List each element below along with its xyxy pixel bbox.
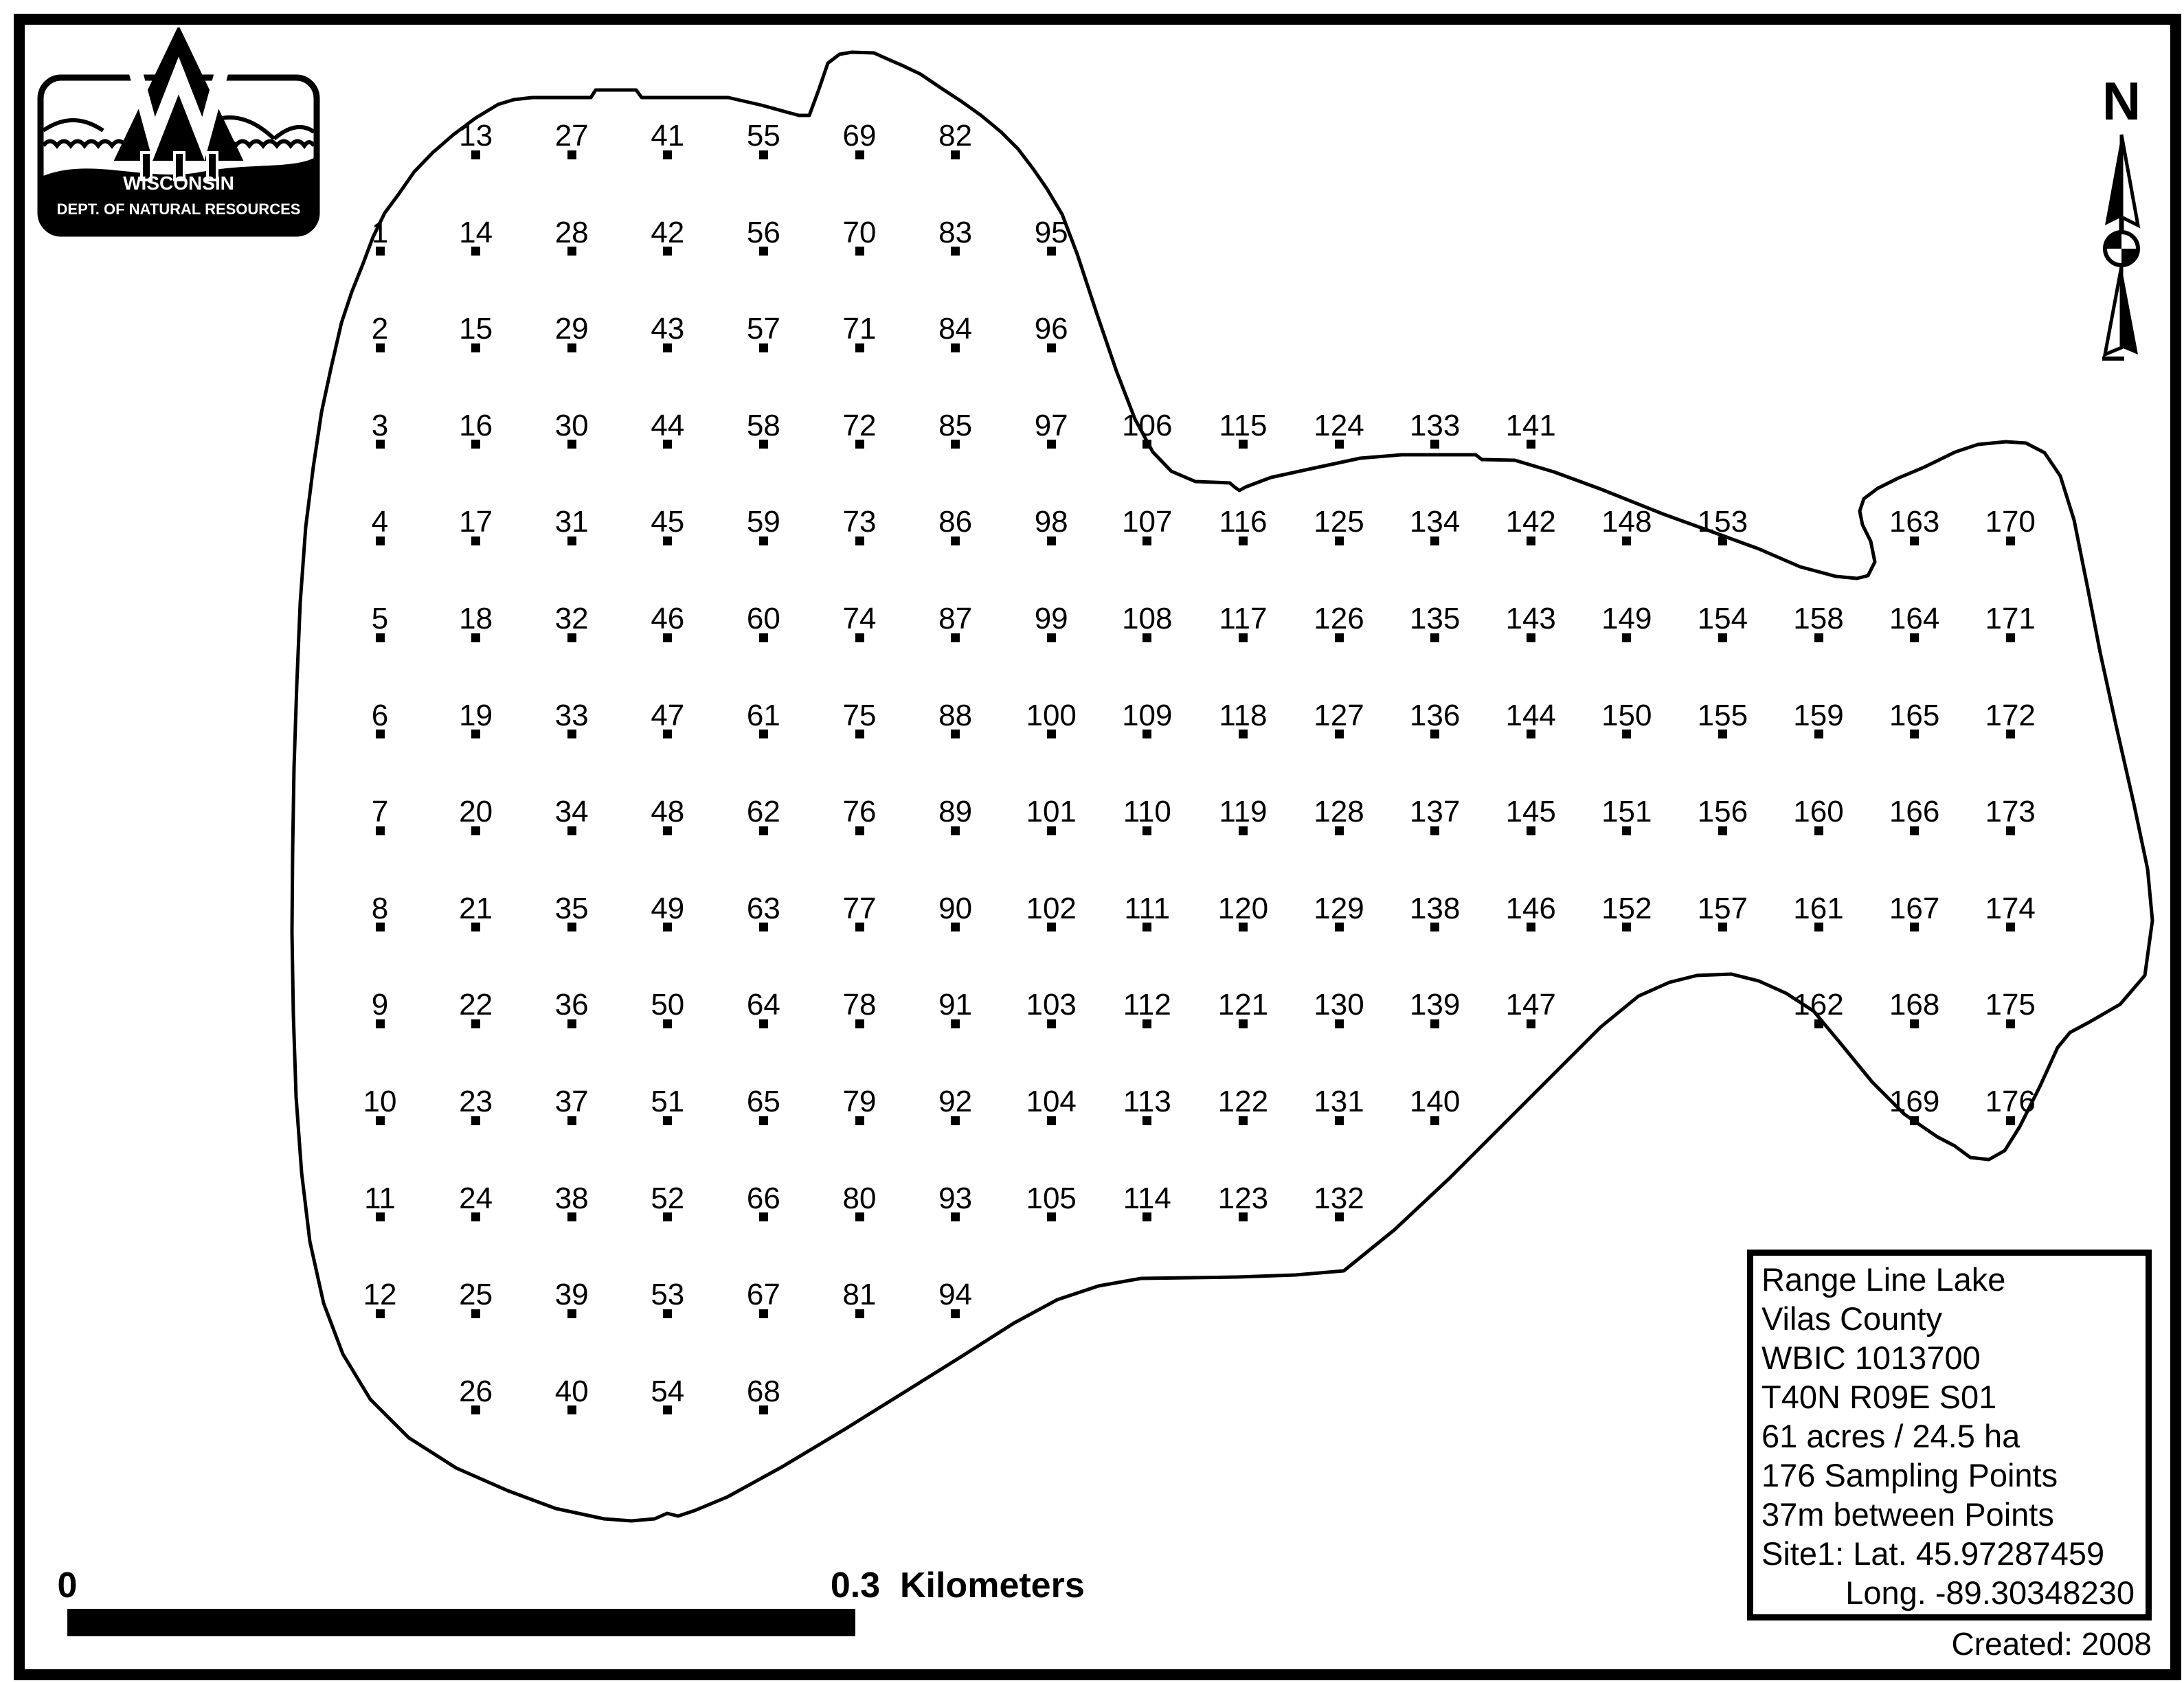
sampling-point-marker [471, 343, 480, 352]
sampling-point-label: 73 [843, 507, 877, 537]
sampling-point-label: 67 [747, 1280, 780, 1310]
sampling-point-marker [376, 440, 385, 449]
sampling-point-label: 134 [1410, 507, 1460, 537]
sampling-point-label: 31 [555, 507, 589, 537]
sampling-point-marker [855, 1212, 864, 1221]
sampling-point-label: 94 [938, 1280, 972, 1310]
sampling-point-marker [759, 923, 768, 931]
sampling-point-label: 101 [1026, 797, 1076, 827]
sampling-point-marker [567, 1019, 576, 1028]
sampling-point-label: 12 [363, 1280, 397, 1310]
sampling-point-marker [1622, 633, 1631, 642]
sampling-point-label: 28 [555, 218, 589, 248]
sampling-point-marker [1335, 536, 1344, 545]
sampling-point-label: 49 [651, 894, 684, 924]
sampling-point-label: 155 [1698, 701, 1748, 731]
sampling-point-label: 45 [651, 507, 684, 537]
sampling-point-marker [951, 247, 960, 256]
sampling-point-marker [1239, 440, 1248, 449]
sampling-point-label: 175 [1985, 990, 2035, 1020]
sampling-point-label: 122 [1218, 1087, 1268, 1117]
sampling-point-label: 167 [1889, 894, 1939, 924]
sampling-point-label: 127 [1314, 701, 1364, 731]
wisconsin-dnr-logo-icon: WISCONSIN DEPT. OF NATURAL RESOURCES [37, 27, 326, 242]
sampling-point-label: 6 [372, 701, 388, 731]
scale-bar [67, 1609, 855, 1636]
sampling-point-label: 37 [555, 1087, 589, 1117]
sampling-point-marker [1047, 826, 1056, 835]
sampling-point-marker [376, 1309, 385, 1318]
sampling-point-marker [1047, 343, 1056, 352]
sampling-point-label: 60 [747, 604, 780, 634]
township-range: T40N R09E S01 [1761, 1377, 2137, 1416]
sampling-point-label: 85 [938, 411, 972, 441]
sampling-point-label: 99 [1035, 604, 1068, 634]
sampling-point-label: 119 [1219, 797, 1267, 827]
sampling-point-label: 8 [372, 894, 388, 924]
sampling-point-label: 163 [1889, 507, 1939, 537]
sampling-point-label: 19 [459, 701, 493, 731]
sampling-point-label: 55 [747, 121, 780, 151]
sampling-point-label: 108 [1122, 604, 1172, 634]
point-spacing: 37m between Points [1761, 1495, 2137, 1534]
sampling-point-label: 22 [459, 990, 493, 1020]
sampling-point-label: 1 [372, 218, 388, 248]
sampling-point-marker [663, 247, 672, 256]
sampling-point-label: 47 [651, 701, 684, 731]
sampling-point-marker [1335, 633, 1344, 642]
scale-unit-label: Kilometers [900, 1565, 1085, 1606]
sampling-point-marker [855, 633, 864, 642]
sampling-point-label: 40 [555, 1377, 589, 1407]
sampling-point-label: 149 [1601, 604, 1652, 634]
sampling-point-label: 158 [1793, 604, 1843, 634]
sampling-point-label: 102 [1026, 894, 1076, 924]
sampling-point-label: 105 [1026, 1184, 1076, 1214]
sampling-point-marker [1142, 1116, 1151, 1125]
sampling-point-label: 26 [459, 1377, 493, 1407]
sampling-point-label: 157 [1698, 894, 1748, 924]
sampling-point-marker [471, 150, 480, 159]
sampling-point-label: 70 [843, 218, 877, 248]
sampling-point-marker [1527, 730, 1535, 738]
sampling-point-marker [1142, 536, 1151, 545]
sampling-point-label: 137 [1410, 797, 1460, 827]
sampling-point-marker [1239, 1116, 1248, 1125]
sampling-point-marker [471, 923, 480, 931]
sampling-point-marker [1718, 923, 1727, 931]
sampling-point-label: 58 [747, 411, 780, 441]
sampling-point-marker [663, 826, 672, 835]
sampling-point-marker [951, 343, 960, 352]
sampling-point-label: 21 [459, 894, 493, 924]
sampling-point-label: 43 [651, 314, 684, 344]
sampling-point-label: 90 [938, 894, 972, 924]
sampling-point-label: 173 [1985, 797, 2035, 827]
sampling-point-marker [759, 826, 768, 835]
sampling-point-marker [1239, 730, 1248, 738]
created-date-label: Created: 2008 [1747, 1625, 2152, 1662]
sampling-point-label: 2 [372, 314, 388, 344]
sampling-point-label: 83 [938, 218, 972, 248]
sampling-point-label: 9 [372, 990, 388, 1020]
sampling-point-label: 140 [1410, 1087, 1460, 1117]
sampling-point-label: 176 [1985, 1087, 2035, 1117]
sampling-point-marker [951, 633, 960, 642]
sampling-point-label: 169 [1889, 1087, 1939, 1117]
sampling-point-label: 50 [651, 990, 684, 1020]
sampling-point-label: 53 [651, 1280, 684, 1310]
sampling-point-marker [1142, 730, 1151, 738]
sampling-point-marker [951, 536, 960, 545]
sampling-point-marker [855, 150, 864, 159]
sampling-point-marker [376, 1019, 385, 1028]
sampling-point-marker [1142, 440, 1151, 449]
sampling-point-label: 93 [938, 1184, 972, 1214]
sampling-point-marker [663, 1212, 672, 1221]
sampling-point-marker [855, 923, 864, 931]
sampling-point-label: 63 [747, 894, 780, 924]
sampling-point-label: 35 [555, 894, 589, 924]
sampling-point-marker [855, 826, 864, 835]
sampling-point-marker [2006, 1116, 2015, 1125]
sampling-point-label: 39 [555, 1280, 589, 1310]
sampling-point-label: 81 [843, 1280, 877, 1310]
sampling-point-label: 128 [1314, 797, 1364, 827]
sampling-point-label: 5 [372, 604, 388, 634]
sampling-point-label: 61 [747, 701, 780, 731]
sampling-point-marker [1142, 923, 1151, 931]
sampling-point-marker [471, 440, 480, 449]
sampling-point-label: 118 [1219, 701, 1267, 731]
sampling-point-label: 15 [459, 314, 493, 344]
sampling-point-label: 114 [1123, 1184, 1171, 1214]
sampling-point-label: 164 [1889, 604, 1939, 634]
sampling-point-marker [951, 1019, 960, 1028]
sampling-point-marker [1814, 633, 1823, 642]
sampling-point-label: 116 [1219, 507, 1267, 537]
sampling-point-marker [567, 826, 576, 835]
sampling-point-marker [376, 1212, 385, 1221]
sampling-point-marker [1527, 1019, 1535, 1028]
sampling-point-marker [1910, 1019, 1919, 1028]
sampling-point-label: 152 [1601, 894, 1652, 924]
sampling-point-marker [663, 730, 672, 738]
sampling-point-marker [376, 633, 385, 642]
sampling-point-label: 72 [843, 411, 877, 441]
sampling-point-label: 77 [843, 894, 877, 924]
sampling-point-marker [759, 440, 768, 449]
scale-start-label: 0 [58, 1565, 78, 1606]
sampling-point-label: 68 [747, 1377, 780, 1407]
sampling-point-label: 117 [1219, 604, 1267, 634]
sampling-point-marker [1718, 826, 1727, 835]
sampling-point-marker [471, 826, 480, 835]
sampling-point-marker [567, 923, 576, 931]
sampling-point-label: 131 [1314, 1087, 1364, 1117]
sampling-point-marker [1047, 730, 1056, 738]
sampling-point-marker [855, 1309, 864, 1318]
sampling-point-label: 41 [651, 121, 684, 151]
sampling-point-marker [663, 1116, 672, 1125]
sampling-point-marker [1527, 536, 1535, 545]
sampling-point-label: 126 [1314, 604, 1364, 634]
sampling-point-marker [759, 1212, 768, 1221]
sampling-point-marker [1335, 826, 1344, 835]
sampling-point-label: 23 [459, 1087, 493, 1117]
sampling-point-marker [1814, 730, 1823, 738]
sampling-point-label: 103 [1026, 990, 1076, 1020]
sampling-point-label: 132 [1314, 1184, 1364, 1214]
sampling-point-label: 57 [747, 314, 780, 344]
sampling-point-label: 76 [843, 797, 877, 827]
sampling-point-marker [471, 1116, 480, 1125]
sampling-point-label: 34 [555, 797, 589, 827]
sampling-point-marker [1622, 536, 1631, 545]
sampling-point-label: 162 [1793, 990, 1843, 1020]
sampling-point-label: 78 [843, 990, 877, 1020]
sampling-point-marker [376, 730, 385, 738]
sampling-point-marker [376, 343, 385, 352]
sampling-point-marker [1142, 826, 1151, 835]
sampling-point-label: 141 [1505, 411, 1555, 441]
sampling-point-marker [376, 923, 385, 931]
sampling-point-marker [1047, 1116, 1056, 1125]
sampling-point-marker [663, 1019, 672, 1028]
sampling-point-label: 24 [459, 1184, 493, 1214]
sampling-point-marker [567, 150, 576, 159]
sampling-point-marker [1910, 633, 1919, 642]
sampling-point-label: 106 [1122, 411, 1172, 441]
sampling-point-marker [855, 730, 864, 738]
sampling-point-marker [855, 343, 864, 352]
sampling-point-label: 38 [555, 1184, 589, 1214]
sampling-point-marker [855, 247, 864, 256]
sampling-point-label: 74 [843, 604, 877, 634]
sampling-point-marker [2006, 826, 2015, 835]
sampling-point-marker [1047, 440, 1056, 449]
sampling-point-marker [1622, 923, 1631, 931]
scale-end-label: 0.3 [831, 1565, 880, 1606]
sampling-point-marker [1047, 247, 1056, 256]
sampling-point-label: 136 [1410, 701, 1460, 731]
sampling-point-marker [376, 536, 385, 545]
sampling-point-label: 75 [843, 701, 877, 731]
sampling-point-marker [567, 440, 576, 449]
sampling-point-marker [951, 730, 960, 738]
sampling-point-marker [2006, 923, 2015, 931]
sampling-point-label: 27 [555, 121, 589, 151]
sampling-point-label: 159 [1793, 701, 1843, 731]
sampling-point-label: 18 [459, 604, 493, 634]
sampling-point-marker [1622, 730, 1631, 738]
sampling-point-label: 56 [747, 218, 780, 248]
sampling-point-marker [1527, 826, 1535, 835]
sampling-point-marker [1430, 826, 1439, 835]
sampling-point-label: 154 [1698, 604, 1748, 634]
sampling-point-label: 148 [1601, 507, 1652, 537]
sampling-point-marker [567, 730, 576, 738]
sampling-point-marker [1430, 923, 1439, 931]
sampling-point-marker [1718, 633, 1727, 642]
sampling-point-marker [1047, 536, 1056, 545]
sampling-point-label: 54 [651, 1377, 684, 1407]
sampling-point-label: 125 [1314, 507, 1364, 537]
sampling-point-marker [1335, 1019, 1344, 1028]
sampling-point-marker [1910, 923, 1919, 931]
sampling-point-marker [471, 536, 480, 545]
sampling-point-marker [1527, 923, 1535, 931]
sampling-points-count: 176 Sampling Points [1761, 1456, 2137, 1495]
sampling-point-label: 120 [1218, 894, 1268, 924]
site1-latitude: Site1: Lat. 45.97287459 [1761, 1534, 2137, 1573]
sampling-point-marker [1239, 923, 1248, 931]
lake-info-box: Range Line Lake Vilas County WBIC 101370… [1747, 1250, 2152, 1620]
sampling-point-marker [759, 247, 768, 256]
sampling-point-label: 91 [938, 990, 972, 1020]
sampling-point-marker [663, 923, 672, 931]
sampling-point-marker [663, 150, 672, 159]
sampling-point-label: 4 [372, 507, 388, 537]
sampling-point-label: 46 [651, 604, 684, 634]
sampling-point-marker [1622, 826, 1631, 835]
sampling-point-label: 13 [459, 121, 493, 151]
sampling-point-marker [1430, 633, 1439, 642]
sampling-point-label: 10 [363, 1087, 397, 1117]
sampling-point-label: 42 [651, 218, 684, 248]
sampling-point-label: 144 [1505, 701, 1555, 731]
sampling-point-marker [951, 1116, 960, 1125]
sampling-point-marker [567, 343, 576, 352]
sampling-point-label: 142 [1505, 507, 1555, 537]
sampling-point-label: 52 [651, 1184, 684, 1214]
sampling-point-label: 156 [1698, 797, 1748, 827]
sampling-point-marker [1047, 923, 1056, 931]
sampling-point-label: 62 [747, 797, 780, 827]
sampling-point-label: 29 [555, 314, 589, 344]
sampling-point-marker [1142, 1212, 1151, 1221]
sampling-point-label: 112 [1123, 990, 1171, 1020]
sampling-point-marker [2006, 730, 2015, 738]
sampling-point-marker [1142, 1019, 1151, 1028]
sampling-point-marker [1910, 826, 1919, 835]
sampling-point-marker [2006, 536, 2015, 545]
sampling-point-marker [759, 1019, 768, 1028]
sampling-point-marker [663, 1309, 672, 1318]
sampling-point-marker [567, 247, 576, 256]
sampling-point-label: 129 [1314, 894, 1364, 924]
sampling-point-label: 115 [1219, 411, 1267, 441]
sampling-point-label: 160 [1793, 797, 1843, 827]
sampling-point-marker [951, 1309, 960, 1318]
sampling-point-label: 80 [843, 1184, 877, 1214]
sampling-point-label: 14 [459, 218, 493, 248]
sampling-point-label: 95 [1035, 218, 1068, 248]
sampling-point-label: 145 [1505, 797, 1555, 827]
sampling-point-marker [471, 730, 480, 738]
sampling-point-label: 7 [372, 797, 388, 827]
sampling-point-label: 97 [1035, 411, 1068, 441]
sampling-point-label: 36 [555, 990, 589, 1020]
sampling-point-label: 172 [1985, 701, 2035, 731]
sampling-point-label: 161 [1793, 894, 1843, 924]
sampling-point-marker [376, 826, 385, 835]
sampling-point-marker [663, 440, 672, 449]
sampling-point-label: 110 [1123, 797, 1171, 827]
sampling-point-label: 113 [1123, 1087, 1171, 1117]
sampling-point-marker [1527, 440, 1535, 449]
sampling-point-marker [1527, 633, 1535, 642]
sampling-point-marker [471, 1309, 480, 1318]
sampling-point-label: 64 [747, 990, 780, 1020]
sampling-point-marker [855, 536, 864, 545]
sampling-point-marker [759, 1405, 768, 1414]
sampling-point-marker [1910, 1116, 1919, 1125]
sampling-point-label: 3 [372, 411, 388, 441]
sampling-point-label: 51 [651, 1087, 684, 1117]
sampling-point-label: 150 [1601, 701, 1652, 731]
sampling-point-label: 133 [1410, 411, 1460, 441]
sampling-point-marker [759, 150, 768, 159]
north-arrow-icon: N [2079, 66, 2164, 368]
sampling-point-label: 30 [555, 411, 589, 441]
sampling-point-marker [1239, 1019, 1248, 1028]
sampling-point-marker [855, 1116, 864, 1125]
sampling-point-label: 86 [938, 507, 972, 537]
sampling-point-label: 174 [1985, 894, 2035, 924]
sampling-point-marker [1239, 536, 1248, 545]
sampling-point-marker [759, 1309, 768, 1318]
sampling-point-marker [759, 343, 768, 352]
sampling-point-marker [951, 440, 960, 449]
sampling-point-marker [951, 1212, 960, 1221]
sampling-point-label: 170 [1985, 507, 2035, 537]
sampling-point-label: 139 [1410, 990, 1460, 1020]
sampling-point-marker [663, 1405, 672, 1414]
site1-longitude: Long. -89.30348230 [1761, 1573, 2137, 1612]
sampling-point-marker [663, 633, 672, 642]
sampling-point-marker [1335, 923, 1344, 931]
sampling-point-marker [951, 150, 960, 159]
sampling-point-marker [663, 536, 672, 545]
sampling-point-marker [1814, 923, 1823, 931]
sampling-point-label: 88 [938, 701, 972, 731]
sampling-point-marker [1335, 1116, 1344, 1125]
sampling-point-label: 17 [459, 507, 493, 537]
sampling-point-label: 87 [938, 604, 972, 634]
sampling-point-label: 25 [459, 1280, 493, 1310]
sampling-point-label: 123 [1218, 1184, 1268, 1214]
wbic-code: WBIC 1013700 [1761, 1338, 2137, 1377]
sampling-point-marker [663, 343, 672, 352]
sampling-point-label: 107 [1122, 507, 1172, 537]
lake-area: 61 acres / 24.5 ha [1761, 1416, 2137, 1456]
sampling-point-label: 84 [938, 314, 972, 344]
sampling-point-label: 124 [1314, 411, 1364, 441]
sampling-point-marker [567, 1405, 576, 1414]
sampling-point-label: 104 [1026, 1087, 1076, 1117]
sampling-point-label: 168 [1889, 990, 1939, 1020]
sampling-point-label: 151 [1601, 797, 1652, 827]
sampling-point-label: 48 [651, 797, 684, 827]
sampling-point-label: 79 [843, 1087, 877, 1117]
sampling-point-marker [1335, 730, 1344, 738]
sampling-point-marker [471, 247, 480, 256]
sampling-point-label: 171 [1985, 604, 2035, 634]
sampling-point-marker [1430, 1116, 1439, 1125]
sampling-point-label: 153 [1698, 507, 1748, 537]
sampling-point-marker [951, 923, 960, 931]
